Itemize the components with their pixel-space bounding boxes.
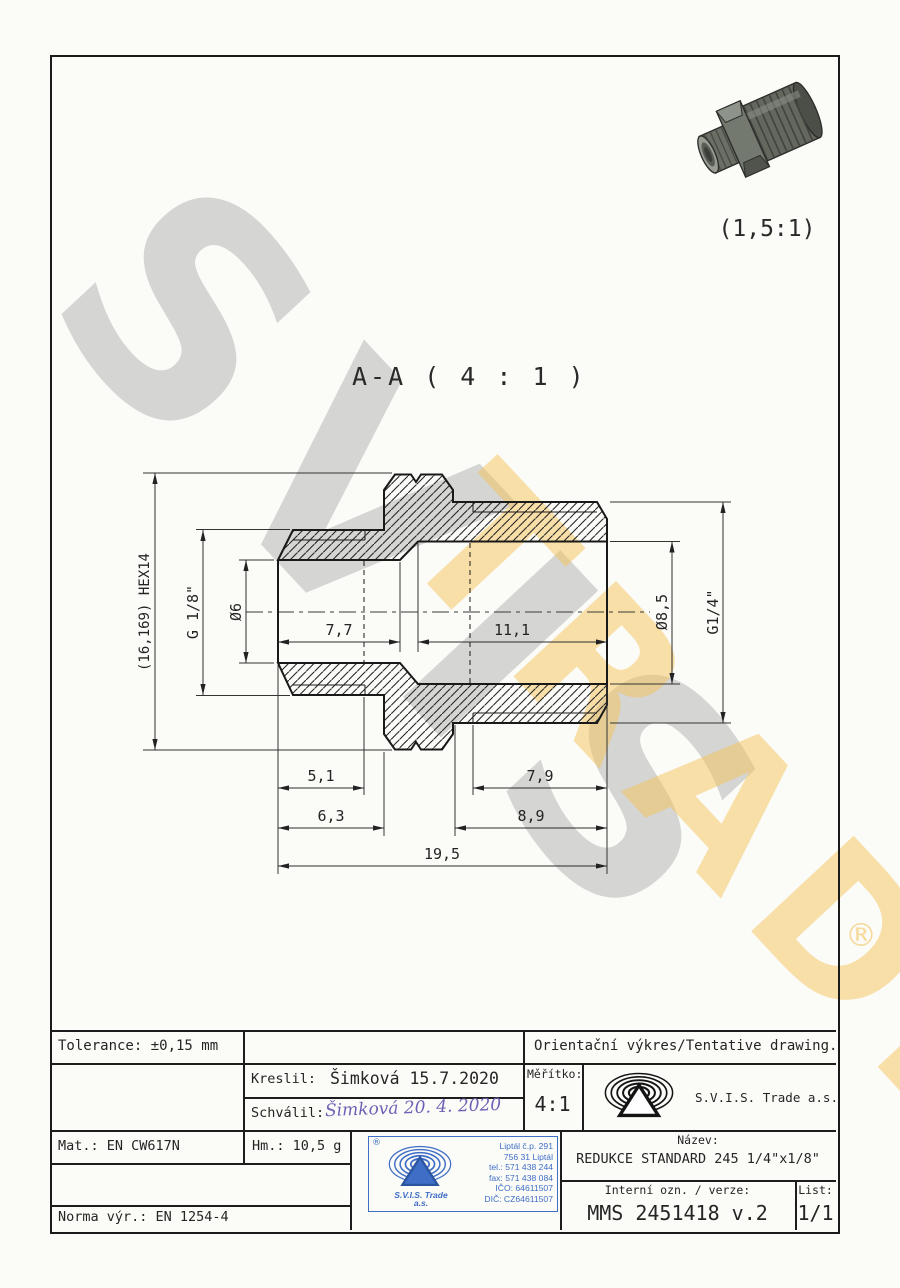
section-title: A-A ( 4 : 1 ) (352, 362, 587, 391)
dim-11-1: 11,1 (494, 621, 530, 639)
titleblock-line (50, 1063, 836, 1065)
nazev-value: REDUKCE STANDARD 245 1/4"x1/8" (560, 1151, 836, 1167)
dim-thread-left: G 1/8" (184, 585, 202, 639)
nazev-label: Název: (560, 1133, 836, 1147)
svis-logo-blue (379, 1145, 461, 1191)
dim-thread-right: G1/4" (704, 589, 722, 634)
stamp-address: Liptál č.p. 291756 31 Liptáltel.: 571 43… (484, 1141, 553, 1205)
kreslil-value: Šimková 15.7.2020 (330, 1069, 499, 1088)
schvalil-label: Schválil: (251, 1105, 324, 1121)
meritko-value: 4:1 (523, 1092, 582, 1116)
titleblock-line (350, 1130, 352, 1230)
titleblock-line (243, 1030, 245, 1163)
list-value: 1/1 (795, 1201, 836, 1225)
watermark-registered-icon: ® (845, 916, 877, 954)
list-label: List: (795, 1183, 836, 1197)
titleblock-line (50, 1163, 350, 1165)
dim-7-9: 7,9 (526, 767, 553, 785)
svis-logo-black (597, 1071, 681, 1123)
dim-8-9: 8,9 (517, 807, 544, 825)
material-text: Mat.: EN CW617N (58, 1138, 180, 1154)
dim-bore-right: Ø8,5 (653, 594, 671, 630)
stamp-company-name: S.V.I.S. Trade a.s. (383, 1191, 459, 1207)
dim-19-5: 19,5 (424, 845, 460, 863)
kreslil-label: Kreslil: (251, 1071, 316, 1087)
dim-bore-left: Ø6 (227, 603, 245, 621)
titleblock-line (50, 1030, 836, 1032)
company-name-text: S.V.I.S. Trade a.s. (695, 1090, 838, 1105)
weight-text: Hm.: 10,5 g (252, 1138, 341, 1154)
meritko-label: Měřítko: (527, 1067, 582, 1081)
dim-6-3: 6,3 (317, 807, 344, 825)
dim-5-1: 5,1 (307, 767, 334, 785)
company-stamp: ® S.V.I.S. Trade a.s. Liptál č.p. 291756… (368, 1136, 558, 1212)
titleblock-line (50, 1205, 350, 1207)
iso-3d-view (688, 60, 838, 200)
norm-text: Norma výr.: EN 1254-4 (58, 1209, 229, 1225)
section-view: (16,169) HEX14 G 1/8" Ø6 Ø8,5 G1/4" 7,7 … (130, 420, 780, 890)
titleblock-line (50, 1130, 836, 1132)
dim-7-7: 7,7 (325, 621, 352, 639)
iso-scale-label: (1,5:1) (712, 216, 822, 242)
tolerance-text: Tolerance: ±0,15 mm (58, 1038, 218, 1054)
tentative-drawing-text: Orientační výkres/Tentative drawing. (534, 1038, 837, 1054)
interni-label: Interní ozn. / verze: (560, 1183, 795, 1197)
interni-value: MMS 2451418 v.2 (560, 1201, 795, 1225)
dim-hex-height: (16,169) HEX14 (137, 553, 153, 671)
